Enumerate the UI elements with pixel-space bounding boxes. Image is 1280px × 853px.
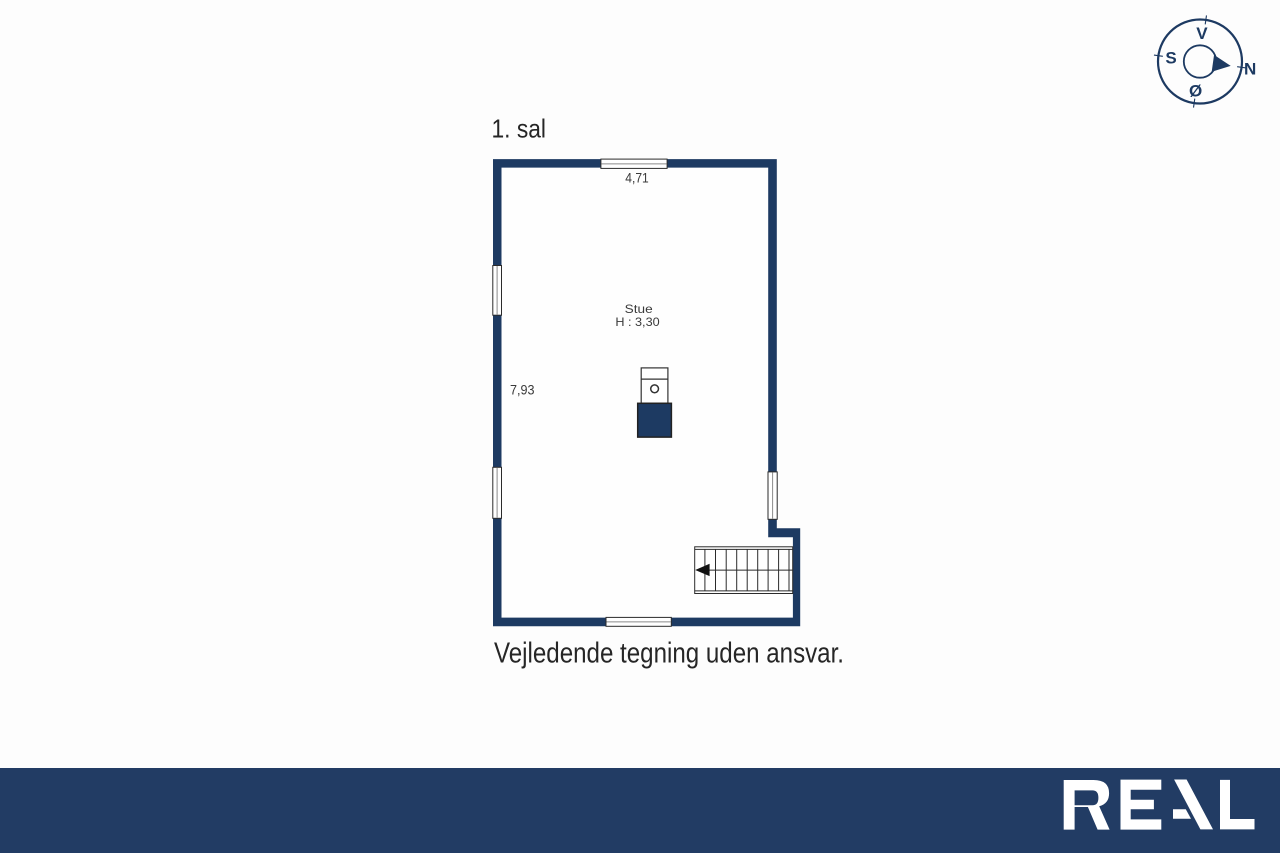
svg-text:Stue: Stue <box>625 302 653 316</box>
svg-text:7,93: 7,93 <box>510 382 535 398</box>
svg-text:V: V <box>1196 24 1208 43</box>
svg-text:4,71: 4,71 <box>625 169 649 185</box>
svg-text:H : 3,30: H : 3,30 <box>615 315 660 329</box>
svg-text:Vejledende tegning uden ansvar: Vejledende tegning uden ansvar. <box>494 638 844 670</box>
svg-text:S: S <box>1165 48 1176 67</box>
svg-text:1. sal: 1. sal <box>492 114 547 144</box>
svg-text:N: N <box>1244 60 1256 79</box>
svg-text:Ø: Ø <box>1189 81 1202 100</box>
